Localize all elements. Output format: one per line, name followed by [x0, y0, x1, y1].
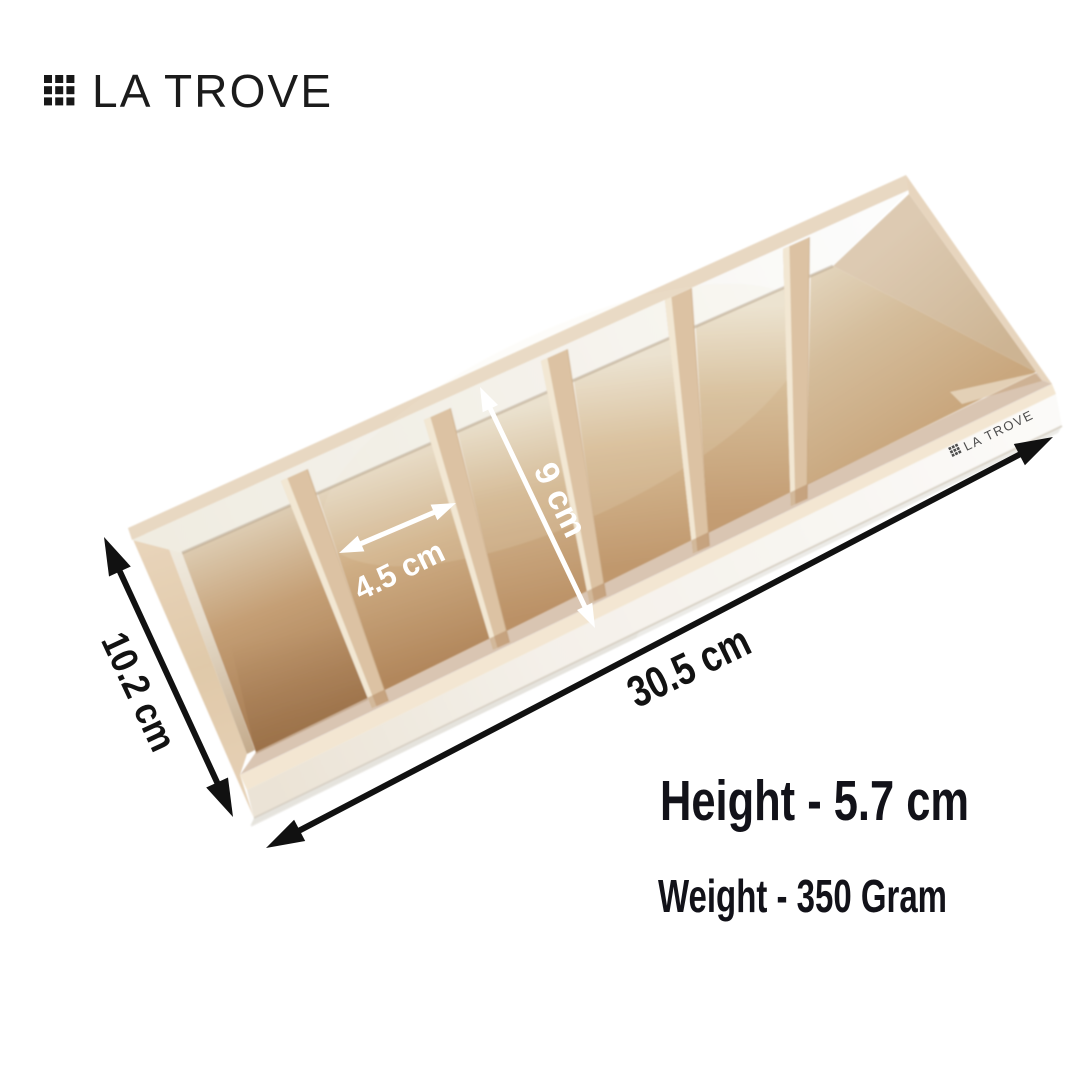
svg-text:LA TROVE: LA TROVE	[92, 65, 332, 117]
svg-text:Weight - 350 Gram: Weight - 350 Gram	[658, 870, 947, 922]
svg-text:Height - 5.7 cm: Height - 5.7 cm	[660, 769, 969, 833]
